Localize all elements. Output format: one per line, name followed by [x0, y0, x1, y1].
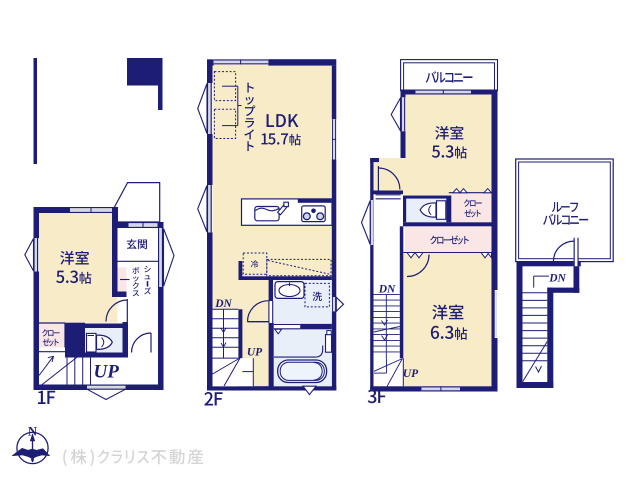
svg-text:UP: UP	[94, 362, 120, 383]
svg-text:UP: UP	[403, 368, 419, 380]
svg-text:UP: UP	[247, 347, 263, 359]
svg-text:DN: DN	[378, 284, 396, 296]
svg-text:DN: DN	[214, 298, 232, 310]
svg-text:DN: DN	[548, 273, 566, 285]
